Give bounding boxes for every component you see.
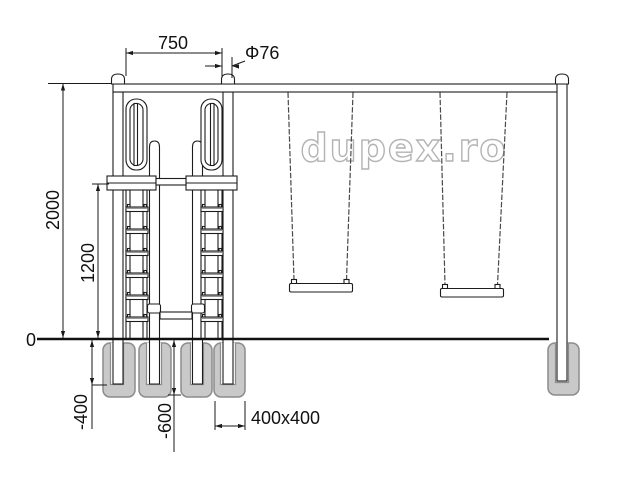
crossbar-clamp [192,304,205,313]
dim-foundation-size-label: 400x400 [251,408,320,428]
dim-top-width-label: 750 [158,33,188,53]
dimension-annotations: 750 Φ76 2000 1200 0 [26,33,320,452]
dim-ladder-height-label: 1200 [78,243,98,283]
ladder-rung [201,315,223,322]
top-beam [113,84,558,92]
ladder-rung [201,205,223,212]
ladder-rung [126,227,148,234]
dim-post-depth: -400 [71,339,107,430]
ladder-rung [126,293,148,300]
ladder [107,99,237,339]
ladder-rung [201,249,223,256]
ladder-rung [126,249,148,256]
right-post [557,84,567,381]
seat-board [441,289,504,298]
ladder-rung [201,227,223,234]
post-cap [556,74,569,84]
dim-total-height-label: 2000 [43,190,63,230]
ladder-rung [126,205,148,212]
bottom-crossbar [160,312,192,319]
dim-total-height: 2000 [43,84,112,339]
seat-board [290,284,353,293]
swing-chain [288,93,294,281]
ladder-rung [201,293,223,300]
handrail-baluster [134,104,138,166]
dim-foundation-depth-label: -600 [155,403,175,439]
post-cap [112,74,125,84]
ladder-rung [126,315,148,322]
post-cap [222,74,235,84]
dim-pipe-diameter: Φ76 [205,43,279,78]
dim-ladder-height: 1200 [78,184,109,338]
dim-top-width: 750 [126,33,222,78]
handrail-baluster [211,104,215,166]
dim-post-depth-label: -400 [71,394,91,430]
swing-chain [498,93,508,286]
swing-seat-left [290,280,353,293]
crossbar-clamp [148,304,161,313]
swing-seat-right [441,285,504,298]
dim-pipe-diameter-label: Φ76 [245,43,279,63]
ground-level-label: 0 [26,330,36,350]
swing-chain [347,93,354,281]
technical-drawing-swing-set: dupex.ro [0,0,640,484]
ladder-rung [126,271,148,278]
dim-foundation-size: 400x400 [215,401,320,430]
ladder-rung [201,271,223,278]
watermark-text: dupex.ro [300,126,507,170]
swings [288,93,507,298]
swing-chain [440,93,445,286]
platform-middle-bar [156,179,186,186]
